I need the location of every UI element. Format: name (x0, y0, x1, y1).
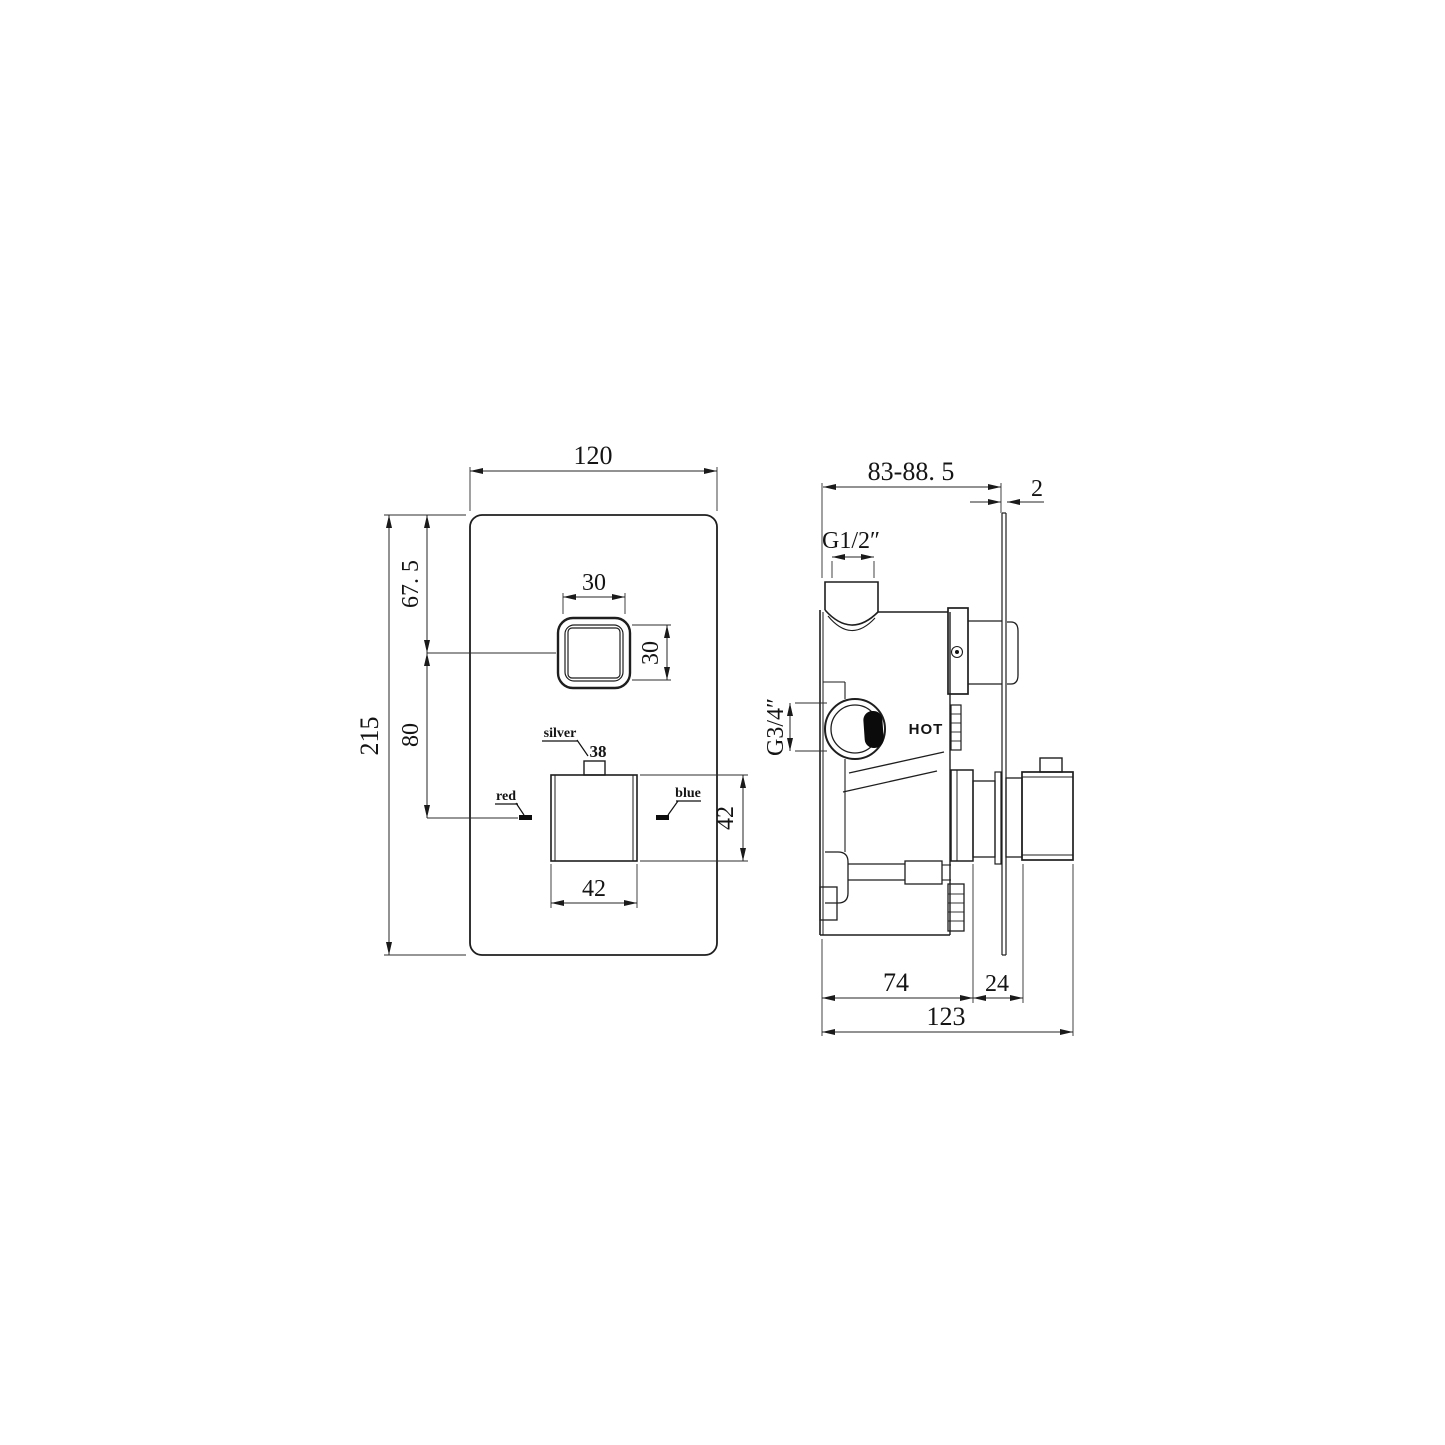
technical-drawing-page: 120 215 67. 5 80 30 30 42 42 silver 38 r… (0, 0, 1445, 1445)
shower-valve-technical-drawing: 120 215 67. 5 80 30 30 42 42 silver 38 r… (0, 0, 1445, 1445)
blue-indicator-mark (656, 815, 669, 820)
label-silver: silver (544, 726, 577, 741)
red-indicator-mark (519, 815, 532, 820)
dim-handle-width: 42 (582, 876, 606, 902)
side-dimension-lines (790, 483, 1073, 1036)
side-view: 83-88. 5 2 G1/2″ G3/4″ HOT 74 24 123 (763, 457, 1073, 1036)
dim-button-to-handle: 80 (398, 723, 424, 747)
dim-top-to-button: 67. 5 (398, 560, 424, 608)
dim-button-height: 30 (638, 641, 664, 665)
diverter-button-outline (558, 618, 630, 688)
g34-port-outline (825, 699, 885, 759)
lower-outlet-outline (848, 861, 964, 931)
dim-button-width: 30 (582, 570, 606, 596)
label-port-thread-g34: G3/4″ (763, 698, 789, 756)
centerlines (427, 653, 556, 818)
dim-plate-thickness: 2 (1031, 476, 1043, 502)
dim-depth-range: 83-88. 5 (868, 457, 955, 486)
front-view: 120 215 67. 5 80 30 30 42 42 silver 38 r… (355, 441, 748, 955)
dim-body-depth: 74 (883, 968, 909, 997)
diverter-button-side-outline (948, 608, 1018, 750)
dim-plate-height: 215 (355, 717, 384, 756)
label-blue: blue (675, 786, 701, 801)
wall-plate-side-outline (1002, 513, 1006, 955)
cartridge-and-handle-side-outline (951, 758, 1073, 864)
label-hot: HOT (909, 721, 944, 738)
label-inlet-thread-g12: G1/2″ (822, 528, 880, 554)
valve-body-outline (820, 582, 950, 935)
dim-handle-height: 42 (713, 806, 739, 830)
front-dimension-lines (384, 467, 748, 955)
dim-total-depth: 123 (927, 1002, 966, 1031)
handle-outline (551, 761, 637, 861)
label-temp-38: 38 (590, 742, 607, 761)
dim-plate-width: 120 (574, 441, 613, 470)
label-red: red (496, 789, 516, 804)
dim-handle-depth: 24 (985, 971, 1009, 997)
